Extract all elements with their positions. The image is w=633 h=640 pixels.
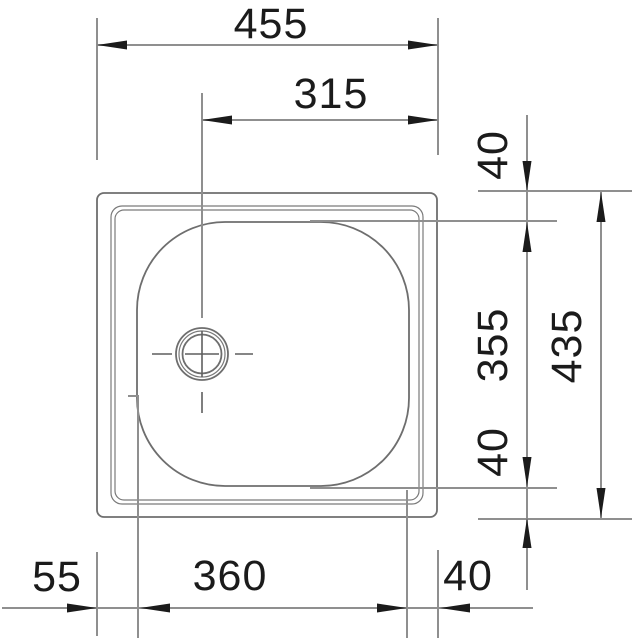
dim-label-bowl-to-right-edge: 40: [443, 552, 493, 600]
arrow-355-up: [523, 222, 532, 252]
arrow-435-down: [597, 488, 606, 518]
arrow-455-right: [408, 41, 438, 50]
dim-label-left-edge-to-bowl: 55: [32, 553, 82, 601]
drain: [152, 93, 253, 413]
dim-label-bowl-depth: 355: [469, 308, 517, 383]
dim-label-overall-width: 455: [234, 0, 309, 48]
sink-dimension-drawing: 455 315 40 355 435 40 55 360 40: [0, 0, 633, 640]
sink-rim-line-inner: [115, 210, 419, 500]
sink-rim-line-outer: [111, 206, 423, 504]
arrow-355-down: [523, 457, 532, 487]
arrow-315-right: [408, 116, 438, 125]
arrow-40btm-left: [440, 604, 470, 613]
dim-label-top-edge-to-bowl: 40: [469, 130, 517, 180]
dim-label-bowl-to-bottom-edge: 40: [469, 427, 517, 477]
arrow-55-right: [67, 604, 97, 613]
arrowheads: [67, 41, 606, 613]
sink-technical-drawing-canvas: 455 315 40 355 435 40 55 360 40: [0, 0, 633, 640]
dim-label-overall-depth: 435: [543, 309, 591, 384]
arrow-435-up: [597, 192, 606, 222]
dimension-labels: 455 315 40 355 435 40 55 360 40: [32, 0, 591, 601]
arrow-455-left: [97, 41, 127, 50]
arrow-360-left: [140, 604, 170, 613]
dim-label-bowl-width: 360: [193, 552, 268, 600]
arrow-40top-down: [523, 161, 532, 191]
bowl-outline: [137, 222, 409, 486]
arrow-40bottom-up: [523, 518, 532, 548]
sink-outer-edge: [97, 193, 437, 517]
sink-body: [97, 193, 437, 517]
dim-label-drain-to-right: 315: [294, 70, 369, 118]
arrow-360-right: [377, 604, 407, 613]
arrow-315-left: [202, 116, 232, 125]
